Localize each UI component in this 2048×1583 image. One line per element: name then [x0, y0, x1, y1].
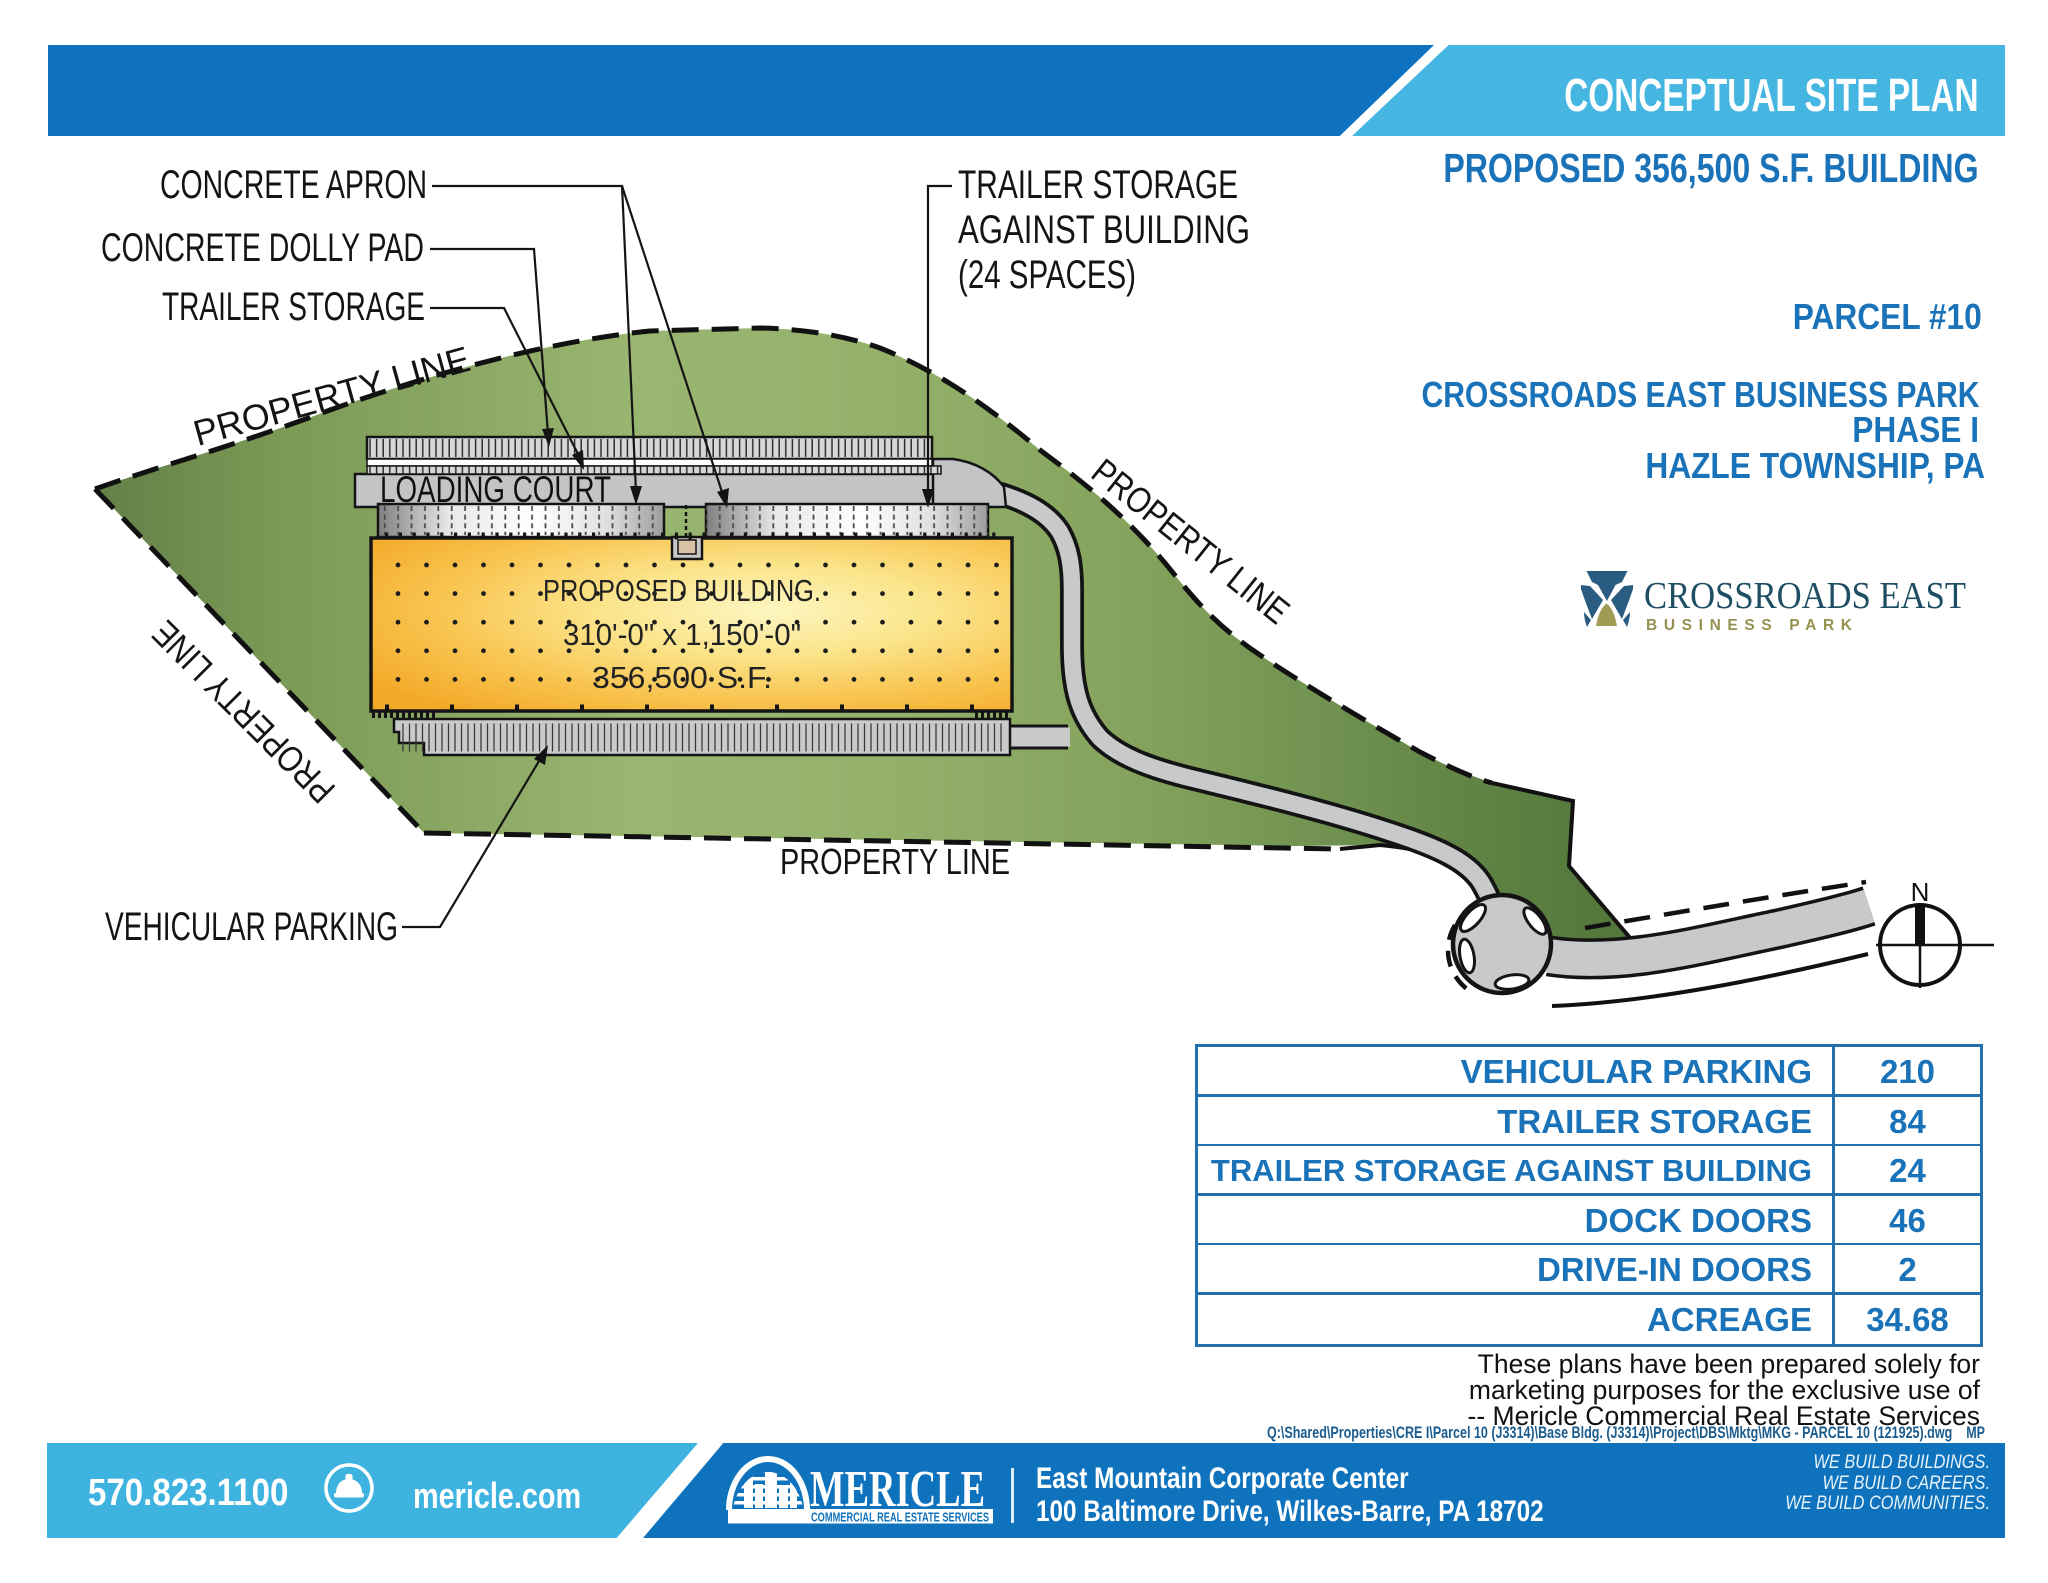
- svg-text:(24 SPACES): (24 SPACES): [958, 253, 1136, 297]
- svg-text:CONCRETE DOLLY PAD: CONCRETE DOLLY PAD: [101, 226, 424, 270]
- svg-text:TRAILER STORAGE: TRAILER STORAGE: [958, 163, 1238, 207]
- svg-text:AGAINST BUILDING: AGAINST BUILDING: [958, 208, 1250, 252]
- svg-text:CONCRETE APRON: CONCRETE APRON: [160, 163, 427, 207]
- svg-text:MERICLE: MERICLE: [810, 1461, 985, 1518]
- svg-text:COMMERCIAL REAL ESTATE SERVICE: COMMERCIAL REAL ESTATE SERVICES: [811, 1511, 989, 1525]
- svg-text:VEHICULAR PARKING: VEHICULAR PARKING: [105, 905, 398, 949]
- svg-text:PROPERTY LINE: PROPERTY LINE: [780, 841, 1010, 882]
- svg-text:N: N: [1911, 877, 1930, 907]
- svg-text:310'-0" x 1,150'-0": 310'-0" x 1,150'-0": [563, 617, 801, 652]
- svg-text:PROPOSED BUILDING.: PROPOSED BUILDING.: [543, 573, 821, 608]
- svg-text:TRAILER STORAGE: TRAILER STORAGE: [162, 285, 425, 329]
- svg-text:356,500 S.F.: 356,500 S.F.: [592, 660, 772, 695]
